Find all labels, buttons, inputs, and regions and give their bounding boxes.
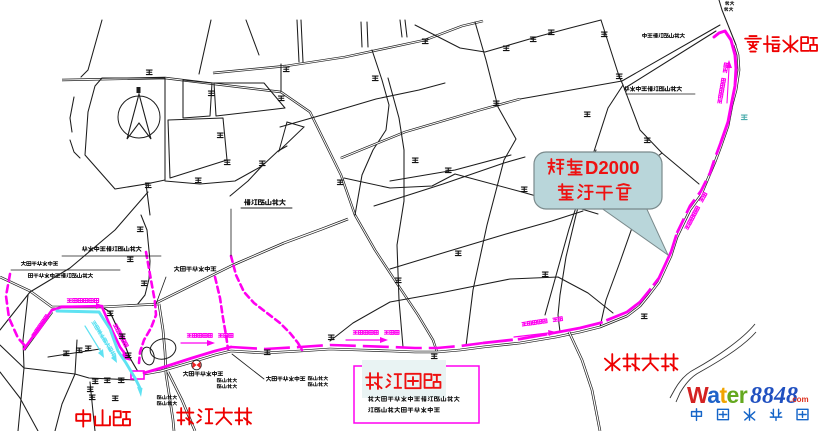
svg-text:Water: Water bbox=[687, 382, 748, 408]
svg-text:D2000: D2000 bbox=[585, 157, 640, 178]
svg-text:.com: .com bbox=[790, 395, 809, 404]
